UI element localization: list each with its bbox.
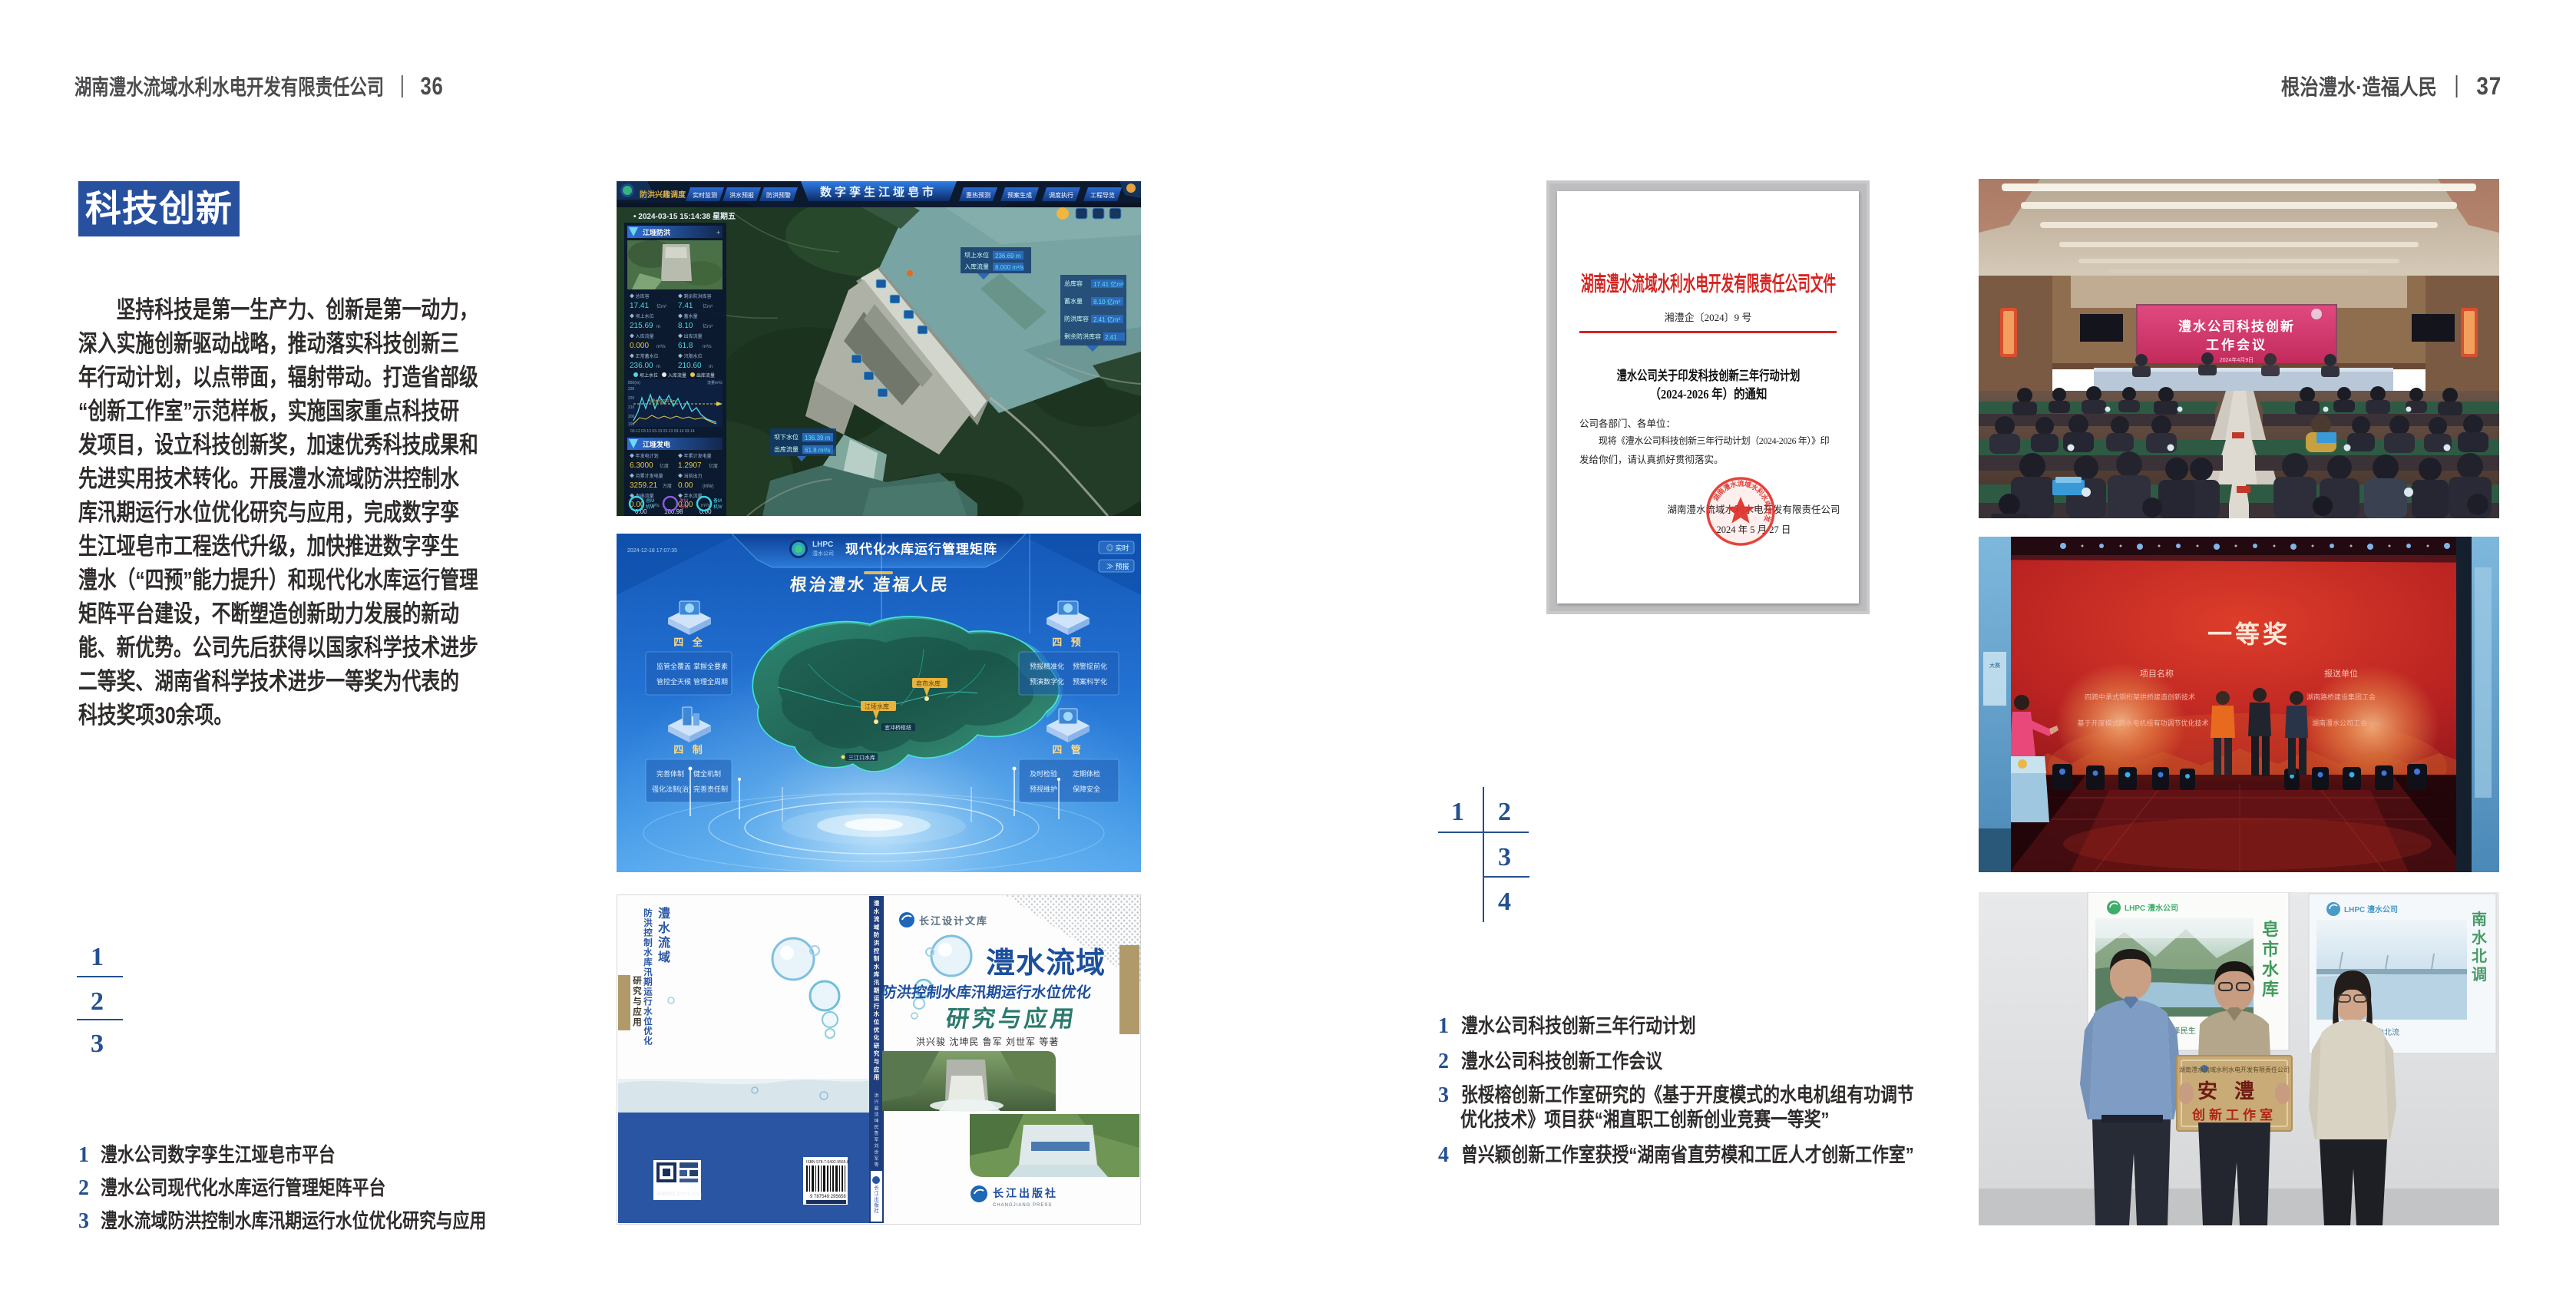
svg-text:创新工作室: 创新工作室 — [2191, 1107, 2277, 1122]
svg-text:流量m³/s: 流量m³/s — [707, 380, 723, 385]
svg-text:安澧: 安澧 — [2197, 1080, 2271, 1103]
svg-text:(MW): (MW) — [703, 484, 714, 489]
svg-text:61.8 m³/s: 61.8 m³/s — [805, 447, 830, 454]
svg-text:CHANGJIANG PRESS: CHANGJIANG PRESS — [993, 1203, 1052, 1208]
svg-text:完善体制: 完善体制 — [656, 769, 684, 778]
svg-text:亿m³: 亿m³ — [703, 323, 713, 329]
svg-text:四 全: 四 全 — [673, 636, 706, 648]
svg-text:+: + — [716, 229, 720, 236]
svg-text:200: 200 — [628, 415, 635, 419]
svg-text:总库容: 总库容 — [1064, 279, 1083, 287]
svg-text:美编观越 定价78.00元: 美编观越 定价78.00元 — [656, 1191, 702, 1197]
svg-text:预演数字化: 预演数字化 — [1030, 677, 1064, 686]
svg-text:预警提前化: 预警提前化 — [1073, 662, 1107, 670]
svg-text:掌握全要素: 掌握全要素 — [693, 662, 728, 670]
svg-text:完善责任制: 完善责任制 — [693, 785, 728, 793]
svg-text:236.00: 236.00 — [630, 362, 653, 370]
svg-text:宜冲桥枢纽: 宜冲桥枢纽 — [885, 724, 911, 731]
svg-text:◆ 出库流量: ◆ 出库流量 — [678, 333, 703, 339]
svg-text:◆ 入库流量: ◆ 入库流量 — [630, 333, 654, 339]
svg-text:湖南澧水流域水利水电开发有限责任公司: 湖南澧水流域水利水电开发有限责任公司 — [2179, 1066, 2290, 1073]
svg-text:出库流量: 出库流量 — [696, 372, 715, 379]
svg-text:2.41 亿m³: 2.41 亿m³ — [1093, 316, 1120, 323]
svg-text:数字孪生江垭皂市: 数字孪生江垭皂市 — [820, 185, 937, 199]
svg-text:电W: 电W — [680, 504, 689, 510]
svg-text:澧水流域防洪控制水库汛期运行水位优化研究与应用: 澧水流域防洪控制水库汛期运行水位优化研究与应用 — [873, 899, 880, 1081]
svg-text:防洪兴趣调度: 防洪兴趣调度 — [640, 190, 686, 200]
svg-text:61.8: 61.8 — [678, 342, 693, 350]
svg-text:预视维护: 预视维护 — [1030, 785, 1057, 793]
svg-text:皂市水库: 皂市水库 — [916, 679, 941, 687]
svg-text:3259.21: 3259.21 — [630, 481, 658, 490]
svg-text:215.69: 215.69 — [630, 322, 653, 330]
svg-text:四 预: 四 预 — [1052, 636, 1084, 648]
svg-text:LHPC 澧水公司: LHPC 澧水公司 — [2125, 903, 2178, 913]
svg-text:◎ 实时: ◎ 实时 — [1106, 544, 1129, 552]
svg-text:136.39 m: 136.39 m — [805, 435, 831, 441]
svg-text:17.41: 17.41 — [630, 302, 649, 310]
svg-text:◆ 汛限水位: ◆ 汛限水位 — [678, 353, 703, 359]
svg-text:惠热预测: 惠热预测 — [966, 191, 990, 199]
svg-text:LHPC 澧水公司: LHPC 澧水公司 — [2344, 904, 2398, 914]
svg-text:坝上水位: 坝上水位 — [640, 372, 658, 379]
svg-text:调度执行: 调度执行 — [1049, 191, 1073, 199]
svg-text:m³/s: m³/s — [703, 345, 712, 349]
svg-text:防洪库容: 防洪库容 — [1064, 315, 1089, 322]
svg-text:洪水预报: 洪水预报 — [729, 191, 754, 199]
svg-text:8.10: 8.10 — [678, 322, 693, 330]
svg-text:亿m³: 亿m³ — [656, 303, 666, 309]
svg-text:蓄水量: 蓄水量 — [1064, 297, 1083, 305]
svg-text:长江出版社: 长江出版社 — [993, 1187, 1058, 1200]
svg-text:1.2907: 1.2907 — [678, 461, 702, 470]
svg-text:万度: 万度 — [663, 483, 672, 489]
svg-text:研究与应用: 研究与应用 — [632, 976, 642, 1027]
svg-text:0.000: 0.000 — [630, 342, 649, 350]
svg-text:湖南澧水公司工会: 湖南澧水公司工会 — [2312, 719, 2367, 727]
svg-text:◆ 月累计发电量: ◆ 月累计发电量 — [630, 473, 663, 479]
svg-text:根治澧水 造福人民: 根治澧水 造福人民 — [789, 575, 951, 594]
svg-text:850(m): 850(m) — [628, 381, 640, 385]
svg-text:管控全天候: 管控全天候 — [656, 677, 691, 686]
svg-text:亿m³: 亿m³ — [703, 303, 713, 309]
svg-text:◆ 蓄水量: ◆ 蓄水量 — [678, 313, 698, 319]
svg-text:皂市水库: 皂市水库 — [2262, 920, 2280, 999]
svg-text:220: 220 — [628, 396, 635, 401]
svg-text:江垭发电: 江垭发电 — [643, 440, 670, 448]
svg-text:江垭水库: 江垭水库 — [865, 703, 889, 710]
svg-text:保障安全: 保障安全 — [1073, 785, 1100, 793]
svg-text:机W: 机W — [713, 504, 723, 510]
svg-text:洪兴骏 沈坤民 鲁军 刘世军 等著: 洪兴骏 沈坤民 鲁军 刘世军 等著 — [916, 1036, 1059, 1047]
svg-text:长江出版社: 长江出版社 — [874, 1184, 879, 1214]
svg-text:2024年4月9日: 2024年4月9日 — [2220, 356, 2254, 363]
svg-text:坝下水位: 坝下水位 — [774, 433, 799, 441]
svg-text:≫ 预报: ≫ 预报 — [1106, 562, 1129, 570]
svg-text:报送单位: 报送单位 — [2324, 668, 2358, 679]
svg-text:◆ 当前出力: ◆ 当前出力 — [678, 473, 703, 479]
svg-text:• 2024-03-15 15:14:38 星期五: • 2024-03-15 15:14:38 星期五 — [633, 211, 736, 221]
svg-text:实时监测: 实时监测 — [693, 191, 717, 199]
svg-text:研究与应用: 研究与应用 — [944, 1005, 1079, 1032]
svg-text:230: 230 — [628, 387, 635, 392]
svg-text:9 787549 295658: 9 787549 295658 — [810, 1195, 846, 1199]
svg-text:◆ 正常蓄水位: ◆ 正常蓄水位 — [630, 353, 659, 359]
svg-text:大赛: 大赛 — [1989, 662, 2000, 669]
svg-text:健全机制: 健全机制 — [693, 769, 721, 778]
svg-text:工程导览: 工程导览 — [1090, 191, 1115, 199]
svg-text:预案科学化: 预案科学化 — [1073, 677, 1107, 686]
svg-text:亿度: 亿度 — [660, 463, 669, 469]
svg-text:6.3000: 6.3000 — [630, 461, 653, 470]
svg-text:◆ 年发电计划: ◆ 年发电计划 — [630, 453, 659, 459]
svg-text:210.60: 210.60 — [678, 362, 702, 370]
svg-text:入库流量: 入库流量 — [668, 372, 686, 379]
svg-text:现代化水库运行管理矩阵: 现代化水库运行管理矩阵 — [845, 541, 997, 557]
svg-text:三江口水库: 三江口水库 — [848, 754, 875, 761]
svg-text:管理全周期: 管理全周期 — [693, 677, 728, 686]
svg-text:7.41: 7.41 — [678, 302, 693, 310]
svg-text:防洪预警: 防洪预警 — [766, 191, 791, 199]
svg-text:机W: 机W — [646, 504, 655, 510]
svg-text:2024-12-18 17:07:35: 2024-12-18 17:07:35 — [627, 548, 677, 554]
svg-text:0.00: 0.00 — [678, 481, 693, 490]
svg-text:入库流量: 入库流量 — [964, 263, 989, 270]
svg-text:及时检验: 及时检验 — [1030, 769, 1057, 778]
svg-text:8.000 m³/s: 8.000 m³/s — [995, 264, 1024, 271]
svg-text:澧水公司科技创新: 澧水公司科技创新 — [2178, 319, 2295, 334]
svg-text:m: m — [709, 365, 713, 369]
svg-text:预案生成: 预案生成 — [1007, 191, 1032, 199]
svg-text:备M: 备M — [713, 498, 722, 504]
svg-text:工作会议: 工作会议 — [2206, 337, 2267, 352]
svg-text:发M: 发M — [680, 498, 688, 504]
svg-text:◆ 坝上水位: ◆ 坝上水位 — [630, 313, 654, 319]
svg-text:m: m — [656, 325, 660, 329]
svg-text:项目名称: 项目名称 — [2140, 668, 2174, 679]
svg-text:236.69 m: 236.69 m — [995, 253, 1021, 260]
svg-text:2.41: 2.41 — [1105, 334, 1117, 341]
svg-text:基于开度模式的水电机组有功调节优化技术: 基于开度模式的水电机组有功调节优化技术 — [2077, 719, 2208, 727]
svg-text:防洪控制水库汛期运行水位优化: 防洪控制水库汛期运行水位优化 — [881, 984, 1093, 1001]
svg-text:m: m — [656, 365, 660, 369]
svg-text:亿度: 亿度 — [709, 463, 718, 469]
svg-text:澧水流域: 澧水流域 — [986, 947, 1106, 980]
svg-text:预报精准化: 预报精准化 — [1030, 662, 1064, 670]
svg-text:澧水公司: 澧水公司 — [812, 550, 834, 557]
svg-text:坝上水位: 坝上水位 — [964, 251, 989, 259]
svg-text:总M: 总M — [646, 498, 654, 504]
svg-text:◆ 年累计发电量: ◆ 年累计发电量 — [678, 453, 712, 459]
svg-text:监管全覆盖: 监管全覆盖 — [656, 662, 691, 670]
svg-text:17.41 亿m³: 17.41 亿m³ — [1093, 280, 1124, 288]
svg-text:03-12 03-13 03-13 03-13 03: 03-12 03-13 03-13 03-13 03-14 03-14 — [630, 429, 695, 434]
svg-text:四 制: 四 制 — [673, 744, 706, 755]
svg-text:四 管: 四 管 — [1052, 744, 1084, 755]
svg-text:一等奖: 一等奖 — [2207, 620, 2290, 648]
svg-text:强化法制(治): 强化法制(治) — [652, 785, 691, 793]
svg-text:剩余防洪库容: 剩余防洪库容 — [1064, 332, 1101, 340]
svg-text:210: 210 — [628, 405, 635, 410]
svg-text:m³/s: m³/s — [656, 345, 666, 349]
svg-text:8.10 亿m³: 8.10 亿m³ — [1093, 298, 1120, 306]
svg-text:◆ 总库容: ◆ 总库容 — [630, 293, 650, 299]
svg-text:190: 190 — [628, 422, 635, 427]
svg-text:LHPC: LHPC — [812, 541, 833, 549]
svg-text:◆ 剩余防洪库容: ◆ 剩余防洪库容 — [678, 293, 712, 299]
svg-text:定期体检: 定期体检 — [1073, 769, 1100, 778]
svg-text:出库流量: 出库流量 — [774, 445, 799, 453]
svg-text:湖南路桥建设集团工会: 湖南路桥建设集团工会 — [2306, 693, 2376, 701]
svg-text:ISBN 978-7-5492-9565-8: ISBN 978-7-5492-9565-8 — [806, 1160, 849, 1165]
svg-text:四跨中承式钢桁架拱桥建造创新技术: 四跨中承式钢桁架拱桥建造创新技术 — [2085, 693, 2195, 701]
svg-text:防洪控制水库汛期运行水位优化: 防洪控制水库汛期运行水位优化 — [643, 908, 653, 1046]
svg-text:长江设计文库: 长江设计文库 — [919, 915, 988, 927]
svg-text:江垭防洪: 江垭防洪 — [643, 228, 670, 236]
